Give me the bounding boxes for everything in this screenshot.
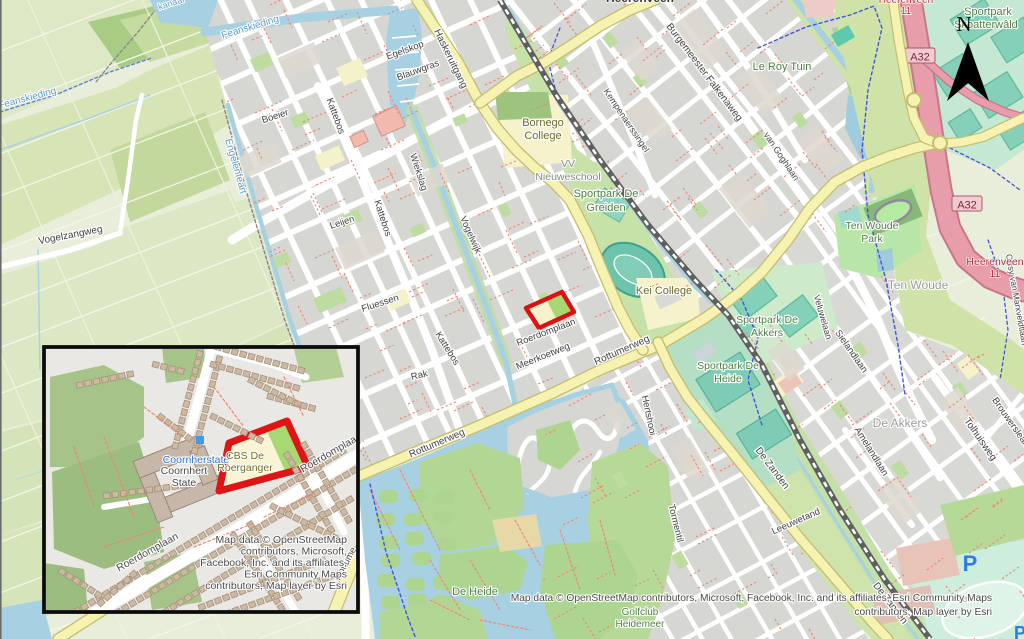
svg-text:CBS De: CBS De [226, 450, 264, 462]
svg-text:A32: A32 [910, 52, 930, 64]
svg-text:Heidemeer: Heidemeer [616, 619, 666, 630]
svg-text:Sportpark De: Sportpark De [574, 188, 639, 200]
svg-text:Heerenveen: Heerenveen [606, 0, 674, 5]
svg-text:P: P [963, 551, 978, 576]
svg-text:Nieuweschool: Nieuweschool [535, 171, 600, 183]
svg-text:State: State [172, 477, 197, 489]
svg-text:A32: A32 [957, 200, 977, 212]
svg-text:Sportpark De: Sportpark De [697, 360, 759, 372]
svg-text:P: P [1014, 623, 1024, 639]
svg-text:Roerganger: Roerganger [217, 462, 273, 474]
svg-text:Kei College: Kei College [636, 285, 692, 297]
svg-text:Golfclub: Golfclub [622, 607, 659, 618]
svg-text:11: 11 [990, 268, 1001, 280]
svg-text:Greiden: Greiden [586, 202, 625, 214]
svg-text:VV: VV [561, 158, 575, 170]
svg-text:Map data © OpenStreetMap contr: Map data © OpenStreetMap contributors, M… [511, 593, 992, 604]
svg-text:De Akkers: De Akkers [873, 416, 928, 430]
svg-text:Facebook, Inc. and its affilia: Facebook, Inc. and its affiliates, [200, 557, 347, 569]
svg-text:Bornego: Bornego [522, 117, 564, 129]
svg-text:Ten Woude: Ten Woude [846, 220, 899, 232]
svg-text:Le Roy Tuin: Le Roy Tuin [753, 61, 812, 73]
svg-text:Park: Park [861, 233, 883, 245]
svg-text:College: College [524, 130, 561, 142]
svg-text:11: 11 [901, 6, 912, 17]
svg-text:Akkers: Akkers [751, 327, 783, 339]
svg-text:N: N [956, 12, 971, 36]
svg-text:Ten Woude: Ten Woude [888, 278, 949, 292]
svg-text:contributors, Map layer by Esr: contributors, Map layer by Esri [854, 607, 992, 618]
svg-text:Sportpark De: Sportpark De [736, 314, 798, 326]
svg-text:De Heide: De Heide [452, 586, 498, 598]
svg-text:Coornhert: Coornhert [161, 465, 208, 477]
svg-text:Heide: Heide [714, 373, 742, 385]
svg-text:Esri Community Maps: Esri Community Maps [244, 569, 347, 581]
svg-text:contributors, Map layer by Esr: contributors, Map layer by Esri [205, 580, 347, 592]
svg-text:contributors, Microsoft,: contributors, Microsoft, [241, 546, 347, 558]
svg-text:Map data © OpenStreetMap: Map data © OpenStreetMap [216, 534, 348, 546]
svg-text:Heerenveen: Heerenveen [966, 256, 1023, 268]
